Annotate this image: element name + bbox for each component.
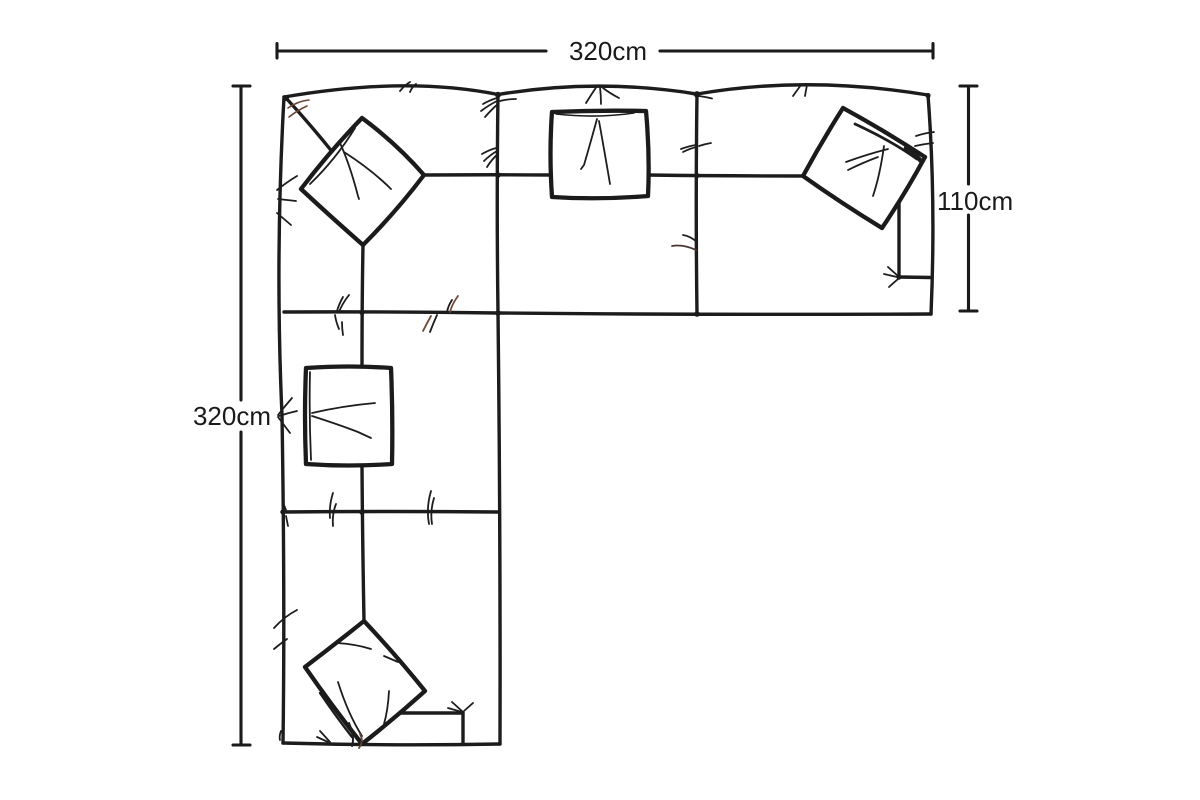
svg-text:320cm: 320cm bbox=[193, 401, 271, 431]
svg-text:320cm: 320cm bbox=[569, 36, 647, 66]
svg-text:110cm: 110cm bbox=[937, 186, 1013, 216]
